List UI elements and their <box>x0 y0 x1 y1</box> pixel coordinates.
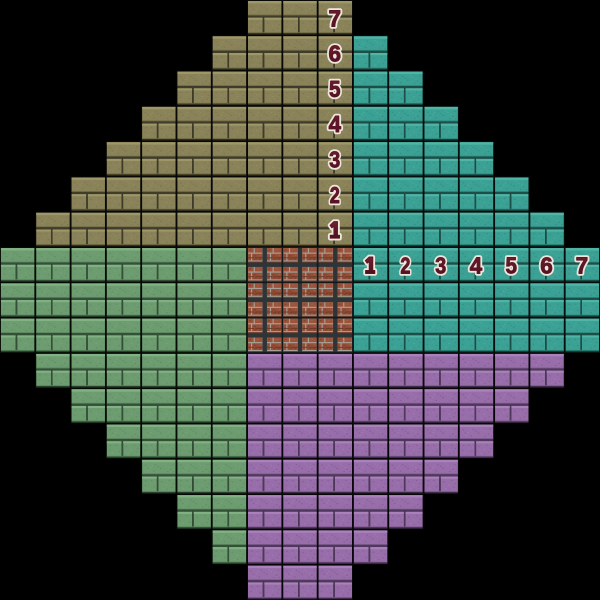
svg-text:4: 4 <box>329 111 342 138</box>
svg-text:6: 6 <box>540 252 553 278</box>
svg-text:5: 5 <box>506 252 517 278</box>
svg-text:7: 7 <box>576 252 589 278</box>
svg-text:5: 5 <box>329 76 340 102</box>
svg-text:4: 4 <box>470 252 483 279</box>
svg-text:2: 2 <box>330 183 340 209</box>
svg-text:7: 7 <box>329 5 342 31</box>
svg-text:3: 3 <box>329 147 340 173</box>
svg-text:3: 3 <box>435 253 446 279</box>
svg-text:6: 6 <box>329 40 342 66</box>
svg-text:2: 2 <box>400 253 410 279</box>
